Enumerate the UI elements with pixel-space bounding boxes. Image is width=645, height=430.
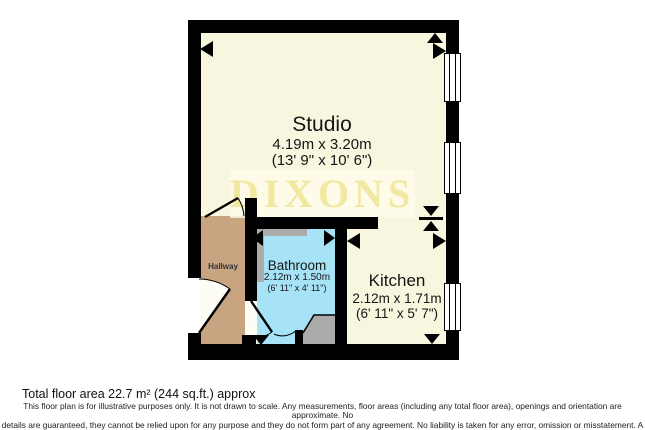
kitchen-label: Kitchen 2.12m x 1.71m (6' 11" x 5' 7") xyxy=(352,270,441,321)
disclaimer-line-2: details are guaranteed, they cannot be r… xyxy=(0,421,645,430)
studio-door-arc xyxy=(238,198,244,216)
hallway-label: Hallway xyxy=(208,262,238,271)
disclaimer-line-1: This floor plan is for illustrative purp… xyxy=(0,402,645,421)
studio-imperial: (13' 9" x 10' 6") xyxy=(272,153,373,169)
total-floor-area: Total floor area 22.7 m² (244 sq.ft.) ap… xyxy=(22,387,255,401)
studio-label: Studio 4.19m x 3.20m (13' 9" x 10' 6") xyxy=(272,113,373,169)
studio-metric: 4.19m x 3.20m xyxy=(272,137,373,153)
shower-door-arc xyxy=(274,331,296,336)
kitchen-name: Kitchen xyxy=(352,270,441,291)
shower-door-leaf xyxy=(303,315,335,333)
disclaimer: This floor plan is for illustrative purp… xyxy=(0,402,645,430)
floorplan-image: DIXONS xyxy=(0,0,645,430)
bathroom-door-leaf xyxy=(251,301,272,332)
bathroom-name: Bathroom xyxy=(264,258,330,273)
bathroom-imperial: (6' 11" x 4' 11") xyxy=(264,283,330,293)
kitchen-metric: 2.12m x 1.71m xyxy=(352,291,441,306)
studio-door-leaf xyxy=(205,198,238,217)
bathroom-label: Bathroom 2.12m x 1.50m (6' 11" x 4' 11") xyxy=(264,258,330,293)
bathroom-door-arc xyxy=(251,332,272,339)
studio-name: Studio xyxy=(272,113,373,137)
bathroom-metric: 2.12m x 1.50m xyxy=(264,273,330,283)
kitchen-imperial: (6' 11" x 5' 7") xyxy=(352,306,441,321)
